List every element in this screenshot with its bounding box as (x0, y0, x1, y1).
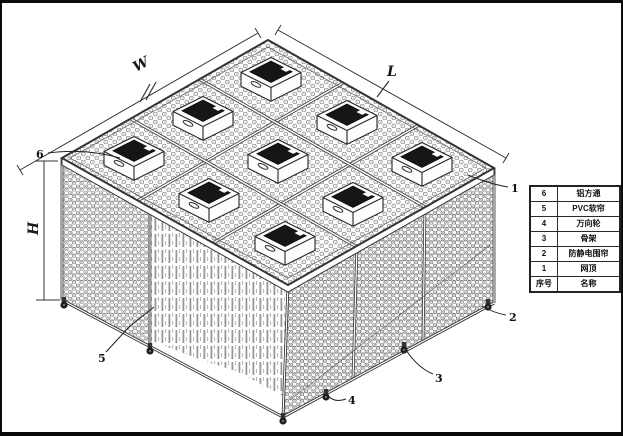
callout-2: 2 (482, 306, 517, 324)
part-name: 骨架 (558, 232, 621, 247)
part-number: 4 (530, 217, 558, 232)
part-number: 6 (530, 186, 558, 202)
dimension-height: H (26, 161, 60, 300)
callout-1-label: 1 (511, 182, 519, 195)
table-row: 6 铝方通 (530, 186, 620, 202)
part-number: 3 (530, 232, 558, 247)
part-name: 铝方通 (558, 186, 621, 202)
height-dimension-label: H (26, 221, 42, 236)
parts-table: 6 铝方通 5 PVC软帘 4 万向轮 3 骨架 2 防静电围帘 1 网顶 序号… (529, 185, 621, 293)
drawing-sheet: W L H 6 1 2 3 4 5 6 铝方 (0, 0, 623, 436)
table-header-row: 序号 名称 (530, 277, 620, 293)
table-row: 4 万向轮 (530, 217, 620, 232)
part-name: 防静电围帘 (558, 247, 621, 262)
callout-4-label: 4 (348, 394, 356, 407)
callout-6-label: 6 (36, 148, 44, 161)
table-row: 2 防静电围帘 (530, 247, 620, 262)
callout-5-label: 5 (98, 352, 106, 365)
part-number: 1 (530, 262, 558, 277)
table-row: 5 PVC软帘 (530, 202, 620, 217)
header-serial-number: 序号 (530, 277, 558, 293)
part-name: 网顶 (558, 262, 621, 277)
table-row: 3 骨架 (530, 232, 620, 247)
callout-3-label: 3 (435, 372, 443, 385)
part-number: 5 (530, 202, 558, 217)
callout-4: 4 (328, 394, 356, 407)
length-dimension-label: L (386, 64, 397, 80)
part-name: PVC软帘 (558, 202, 621, 217)
part-number: 2 (530, 247, 558, 262)
part-name: 万向轮 (558, 217, 621, 232)
width-dimension-label: W (130, 53, 153, 75)
callout-3: 3 (406, 350, 443, 385)
table-row: 1 网顶 (530, 262, 620, 277)
header-part-name: 名称 (558, 277, 621, 293)
callout-2-label: 2 (509, 311, 517, 324)
